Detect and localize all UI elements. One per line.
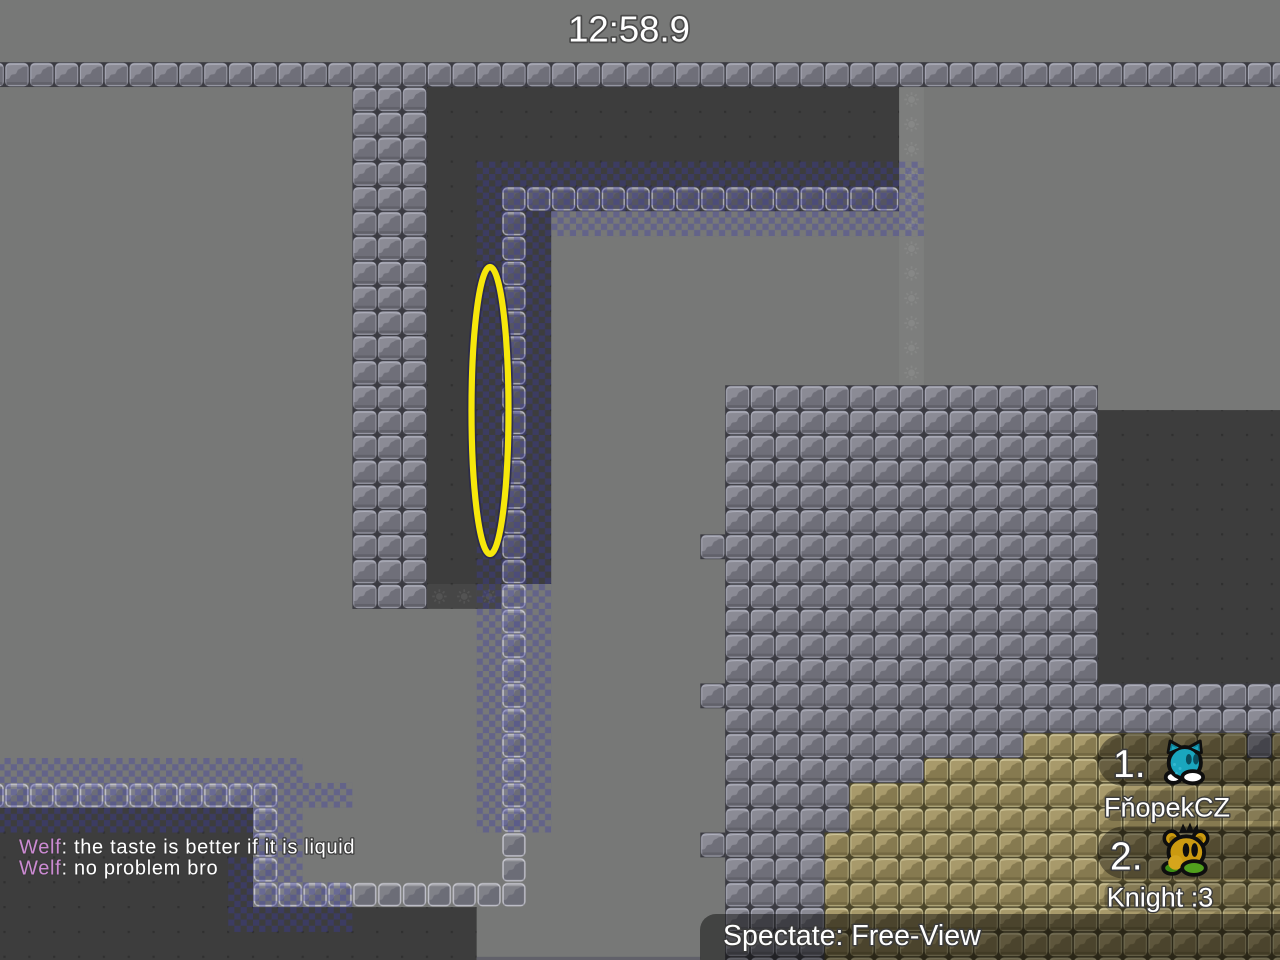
svg-text:Welf: the taste is better if i: Welf: the taste is better if it is liqui…: [19, 837, 355, 859]
svg-text:Spectate: Free-View: Spectate: Free-View: [723, 920, 981, 952]
svg-text:2.: 2.: [1110, 836, 1143, 879]
svg-text:1.: 1.: [1113, 743, 1146, 786]
svg-text:12:58.9: 12:58.9: [568, 8, 690, 49]
svg-text:Knight :3: Knight :3: [1107, 883, 1214, 913]
svg-text:FňopekCZ: FňopekCZ: [1104, 793, 1230, 823]
svg-text:Welf: no problem bro: Welf: no problem bro: [19, 858, 218, 880]
